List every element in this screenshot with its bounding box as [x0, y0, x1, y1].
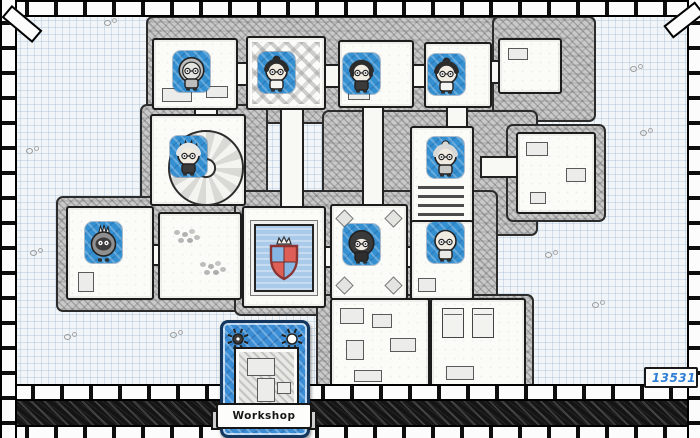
workshop-card-label: Workshop: [232, 410, 295, 422]
room-workshop-interior: [330, 298, 430, 392]
resource-counter: 13531: [644, 367, 698, 388]
bed-sketch: [442, 308, 464, 338]
sun-icon: [649, 371, 650, 385]
dungeoneer-tile[interactable]: [170, 136, 207, 177]
furniture-sketch: [530, 192, 546, 204]
rock-pile-sketch: [200, 262, 206, 267]
dungeoneer-tile[interactable]: [428, 54, 465, 95]
furniture-sketch: [418, 278, 436, 292]
floor-tile: [384, 209, 402, 227]
sketch-doodad: [170, 332, 177, 338]
dungeoneer-tile[interactable]: [258, 52, 295, 93]
furniture-sketch: [372, 314, 392, 328]
crown-icon: [277, 237, 291, 244]
counter-value: 13531: [652, 371, 696, 385]
furniture-sketch: [340, 308, 364, 324]
workshop-card-banner: Workshop: [216, 403, 312, 429]
dungeoneer-tile[interactable]: [173, 51, 210, 92]
sketch-doodad: [545, 252, 552, 258]
dungeoneer-tile[interactable]: [343, 53, 380, 94]
sun-icon: [280, 327, 304, 351]
sketch-doodad: [640, 130, 647, 136]
guild-crest-plaque: [254, 224, 314, 292]
table-edge-bricks: [6, 384, 694, 401]
room-caves: [158, 212, 242, 300]
room-bunks: [430, 298, 526, 392]
dungeoneer-tile[interactable]: [427, 137, 464, 178]
furniture-sketch: [354, 370, 382, 382]
rock-pile-sketch: [174, 230, 180, 235]
furniture-sketch: [390, 338, 416, 352]
sketch-doodad: [30, 250, 37, 256]
dungeoneer-tile[interactable]: [427, 222, 464, 263]
sketch-doodad: [630, 66, 637, 72]
sketch-doodad: [592, 302, 599, 308]
furniture-sketch: [346, 340, 364, 360]
corridor: [480, 156, 518, 178]
guild-crest-shield: [264, 234, 304, 282]
floor-tile: [335, 276, 353, 294]
pews-sketch: [418, 186, 464, 218]
dungeoneer-tile[interactable]: [85, 222, 122, 263]
frame-top-bricks: [0, 0, 700, 17]
room-far-top-right: [498, 38, 562, 94]
floor-tile: [384, 276, 402, 294]
furniture-sketch: [78, 272, 94, 292]
furniture-sketch: [526, 142, 548, 156]
frame-left-bricks: [0, 0, 17, 438]
corridor: [362, 100, 384, 214]
game-screen: Workshop 13531: [0, 0, 700, 438]
sketch-doodad: [26, 148, 33, 154]
dungeoneer-tile[interactable]: [343, 224, 380, 265]
workshop-card-picture: [236, 349, 297, 410]
bed-sketch: [472, 308, 494, 338]
workshop-card[interactable]: Workshop: [220, 320, 310, 438]
furniture-sketch: [446, 366, 474, 380]
sketch-doodad: [64, 334, 71, 340]
furniture-sketch: [566, 168, 586, 182]
sun-icon: [226, 327, 250, 351]
furniture-sketch: [508, 48, 528, 60]
corridor: [280, 98, 304, 214]
room-annex: [516, 132, 596, 214]
sketch-doodad: [104, 20, 111, 26]
frame-bottom-bricks: [0, 425, 700, 438]
